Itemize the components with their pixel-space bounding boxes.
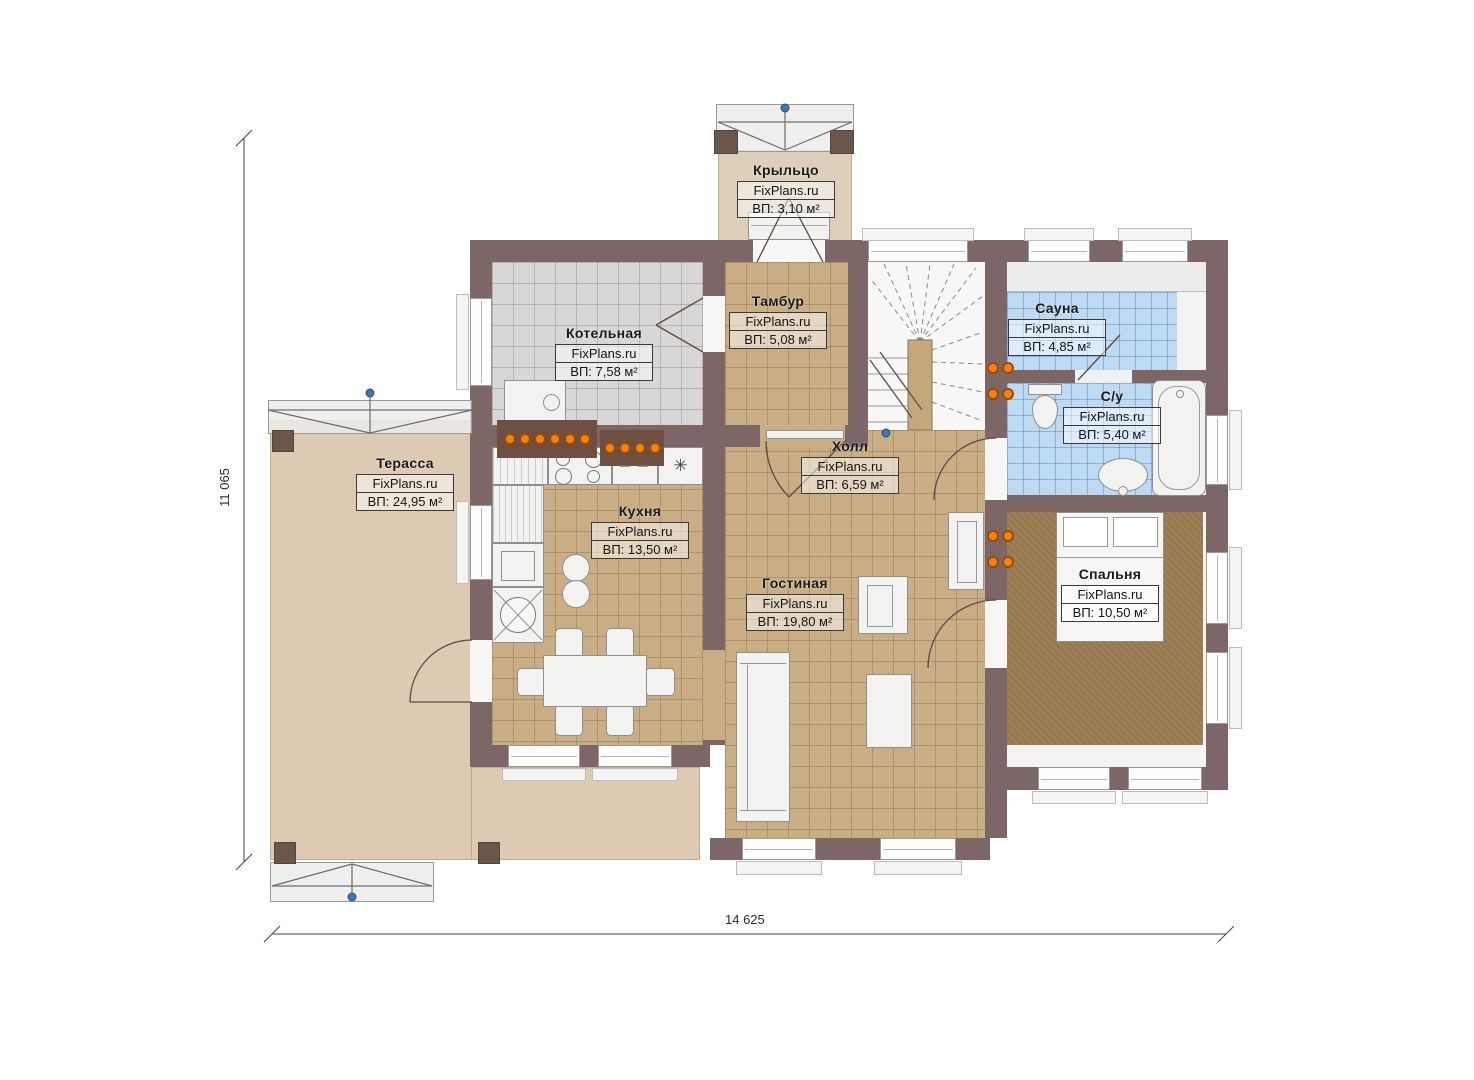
room-name: Спальня xyxy=(1061,566,1159,582)
room-area: ВП: 10,50 м² xyxy=(1062,603,1158,621)
window-kitchen-bottom-1 xyxy=(508,745,580,767)
room-area: ВП: 3,10 м² xyxy=(738,199,834,217)
window-sauna-2 xyxy=(1122,240,1188,262)
room-label-boiler: Котельная FixPlans.ru ВП: 7,58 м² xyxy=(555,325,653,381)
terrace-post-bottom-right xyxy=(478,842,500,864)
room-label-bedroom: Спальня FixPlans.ru ВП: 10,50 м² xyxy=(1061,566,1159,622)
wall-boiler-vestibule xyxy=(703,262,725,447)
dimension-width-label: 14 625 xyxy=(725,912,765,927)
room-area: ВП: 19,80 м² xyxy=(747,612,843,630)
sill-bedroom-right-1 xyxy=(1229,547,1242,629)
sill-bathroom xyxy=(1229,410,1242,490)
terrace-post-bottom-left xyxy=(274,842,296,864)
radiator-boiler-b xyxy=(600,430,664,466)
room-area: ВП: 13,50 м² xyxy=(592,540,688,558)
burner-icon xyxy=(555,468,572,485)
radiator-icon xyxy=(504,433,516,445)
washing-machine xyxy=(504,380,566,424)
room-name: Крыльцо xyxy=(737,162,835,178)
watermark: FixPlans.ru xyxy=(1062,586,1158,603)
armchair-cushion xyxy=(867,585,893,627)
fridge-freezer: ✳ xyxy=(658,447,703,485)
sill-living-1 xyxy=(736,861,822,875)
stool xyxy=(562,580,590,608)
chair xyxy=(555,704,583,736)
burner-icon xyxy=(587,470,600,483)
room-label-living: Гостиная FixPlans.ru ВП: 19,80 м² xyxy=(746,575,844,631)
door-opening-sauna xyxy=(1075,370,1132,383)
tv-cabinet xyxy=(948,512,984,590)
wall-bath-bedroom xyxy=(1007,495,1206,512)
window-sauna-1 xyxy=(1028,240,1090,262)
radiator-icon xyxy=(987,530,999,542)
sofa-armrest-line xyxy=(740,663,786,664)
wall-sauna-bath-a xyxy=(1007,370,1075,383)
room-area-box: FixPlans.ru ВП: 5,40 м² xyxy=(1063,407,1161,444)
watermark: FixPlans.ru xyxy=(730,313,826,330)
window-bathroom xyxy=(1206,415,1228,485)
sill-kitchen-bottom-1 xyxy=(502,768,586,781)
wall-top xyxy=(470,240,1228,262)
pillow xyxy=(1113,517,1158,547)
window-bedroom-1 xyxy=(1038,767,1110,790)
pillow xyxy=(1063,517,1108,547)
room-area: ВП: 4,85 м² xyxy=(1009,337,1105,355)
chair xyxy=(645,668,675,696)
wall-vestibule-stairs xyxy=(848,262,868,430)
radiator-icon xyxy=(987,388,999,400)
window-living-2 xyxy=(880,838,956,860)
radiator-icon xyxy=(534,433,546,445)
door-opening-boiler xyxy=(703,296,725,352)
sill-kitchen-left xyxy=(456,501,469,584)
radiator-icon xyxy=(1002,530,1014,542)
radiator-icon xyxy=(634,442,646,454)
radiator-icon xyxy=(549,433,561,445)
oven-cabinet xyxy=(492,543,544,587)
sill-kitchen-bottom-2 xyxy=(592,768,678,781)
room-name: Терасса xyxy=(356,455,454,471)
wall-kitchen-bottom xyxy=(470,745,710,767)
radiator-bedroom-wall xyxy=(986,524,1014,574)
watermark: FixPlans.ru xyxy=(592,523,688,540)
room-area: ВП: 5,40 м² xyxy=(1064,425,1160,443)
room-name: Сауна xyxy=(1008,300,1106,316)
marker-icon xyxy=(366,389,374,397)
window-kitchen-bottom-2 xyxy=(598,745,672,767)
room-area: ВП: 5,08 м² xyxy=(730,330,826,348)
room-name: С/у xyxy=(1063,388,1161,404)
terrace-post-top xyxy=(272,430,294,452)
radiator-sauna-wall xyxy=(986,356,1014,406)
sill-bedroom-right-2 xyxy=(1229,647,1242,729)
room-label-porch: Крыльцо FixPlans.ru ВП: 3,10 м² xyxy=(737,162,835,218)
radiator-icon xyxy=(579,433,591,445)
dishwasher xyxy=(492,485,544,543)
window-bedroom-right-1 xyxy=(1206,552,1228,624)
room-name: Гостиная xyxy=(746,575,844,591)
room-area-box: FixPlans.ru ВП: 19,80 м² xyxy=(746,594,844,631)
door-opening-hall-bathroom xyxy=(985,438,1007,500)
room-label-terrace: Терасса FixPlans.ru ВП: 24,95 м² xyxy=(356,455,454,511)
wall-right-wing-c xyxy=(985,668,1007,838)
washer-door-icon xyxy=(543,394,560,411)
door-opening-entrance xyxy=(753,240,825,262)
window-living-1 xyxy=(742,838,816,860)
room-label-sauna: Сауна FixPlans.ru ВП: 4,85 м² xyxy=(1008,300,1106,356)
bathtub-inner xyxy=(1158,386,1200,490)
door-opening-living-bedroom xyxy=(985,600,1007,668)
radiator-icon xyxy=(564,433,576,445)
watermark: FixPlans.ru xyxy=(747,595,843,612)
sill-bedroom-2 xyxy=(1122,791,1208,804)
watermark: FixPlans.ru xyxy=(1009,320,1105,337)
cabinet-line xyxy=(957,521,977,583)
room-area-box: FixPlans.ru ВП: 5,08 м² xyxy=(729,312,827,349)
room-area-box: FixPlans.ru ВП: 13,50 м² xyxy=(591,522,689,559)
room-name: Холл xyxy=(801,438,899,454)
watermark: FixPlans.ru xyxy=(357,475,453,492)
radiator-icon xyxy=(987,556,999,568)
toilet-tank xyxy=(1028,384,1062,395)
sofa xyxy=(736,652,790,822)
window-kitchen-left xyxy=(470,505,492,580)
dimension-height-label: 11 065 xyxy=(217,468,232,507)
room-area: ВП: 24,95 м² xyxy=(357,492,453,510)
window-stairs xyxy=(868,240,968,262)
room-name: Тамбур xyxy=(729,293,827,309)
floor-plan-canvas: ✳ xyxy=(0,0,1474,1080)
door-opening-kitchen-terrace xyxy=(470,640,492,702)
chair xyxy=(606,704,634,736)
sill-boiler xyxy=(456,294,469,390)
room-area: ВП: 6,59 м² xyxy=(802,475,898,493)
sill-bedroom-1 xyxy=(1032,791,1116,804)
faucet-icon xyxy=(1176,390,1184,398)
porch-post-right xyxy=(830,130,854,154)
room-label-hall: Холл FixPlans.ru ВП: 6,59 м² xyxy=(801,438,899,494)
coffee-table xyxy=(866,674,912,748)
window-boiler xyxy=(470,298,492,386)
stool xyxy=(562,554,590,582)
armchair xyxy=(858,576,908,634)
radiator-icon xyxy=(604,442,616,454)
room-area-box: FixPlans.ru ВП: 7,58 м² xyxy=(555,344,653,381)
room-area: ВП: 7,58 м² xyxy=(556,362,652,380)
staircase xyxy=(868,262,985,430)
sill-sauna-1 xyxy=(1024,228,1094,241)
sofa-back-line xyxy=(747,665,748,811)
blanket-line xyxy=(1057,557,1165,558)
watermark: FixPlans.ru xyxy=(738,182,834,199)
radiator-icon xyxy=(519,433,531,445)
watermark: FixPlans.ru xyxy=(556,345,652,362)
radiator-icon xyxy=(649,442,661,454)
opening-kitchen-living xyxy=(703,650,725,740)
room-area-box: FixPlans.ru ВП: 10,50 м² xyxy=(1061,585,1159,622)
porch-post-left xyxy=(714,130,738,154)
terrace-canopy-top xyxy=(268,400,472,434)
step-line xyxy=(751,225,827,226)
watermark: FixPlans.ru xyxy=(802,458,898,475)
room-label-bathroom: С/у FixPlans.ru ВП: 5,40 м² xyxy=(1063,388,1161,444)
radiator-icon xyxy=(1002,556,1014,568)
terrace-canopy-bottom xyxy=(270,862,434,902)
radiator-icon xyxy=(1002,362,1014,374)
room-label-kitchen: Кухня FixPlans.ru ВП: 13,50 м² xyxy=(591,503,689,559)
window-bedroom-right-2 xyxy=(1206,652,1228,724)
sill-stairs xyxy=(862,228,974,241)
sink-bowl-icon xyxy=(500,597,536,633)
window-bedroom-2 xyxy=(1128,767,1202,790)
radiator-icon xyxy=(987,362,999,374)
radiator-boiler-a xyxy=(497,420,597,458)
room-area-box: FixPlans.ru ВП: 6,59 м² xyxy=(801,457,899,494)
room-label-vestibule: Тамбур FixPlans.ru ВП: 5,08 м² xyxy=(729,293,827,349)
sill-sauna-2 xyxy=(1118,228,1192,241)
wall-right-wing-a xyxy=(985,262,1007,438)
sill-living-2 xyxy=(874,861,962,875)
room-area-box: FixPlans.ru ВП: 3,10 м² xyxy=(737,181,835,218)
sauna-bench xyxy=(1007,262,1206,292)
room-name: Котельная xyxy=(555,325,653,341)
freezer-icon: ✳ xyxy=(673,456,687,476)
room-name: Кухня xyxy=(591,503,689,519)
radiator-icon xyxy=(1002,388,1014,400)
room-area-box: FixPlans.ru ВП: 4,85 м² xyxy=(1008,319,1106,356)
radiator-icon xyxy=(619,442,631,454)
room-area-box: FixPlans.ru ВП: 24,95 м² xyxy=(356,474,454,511)
sink-drain-icon xyxy=(1118,486,1128,496)
dining-table xyxy=(543,655,647,707)
oven-door-icon xyxy=(501,551,535,581)
watermark: FixPlans.ru xyxy=(1064,408,1160,425)
